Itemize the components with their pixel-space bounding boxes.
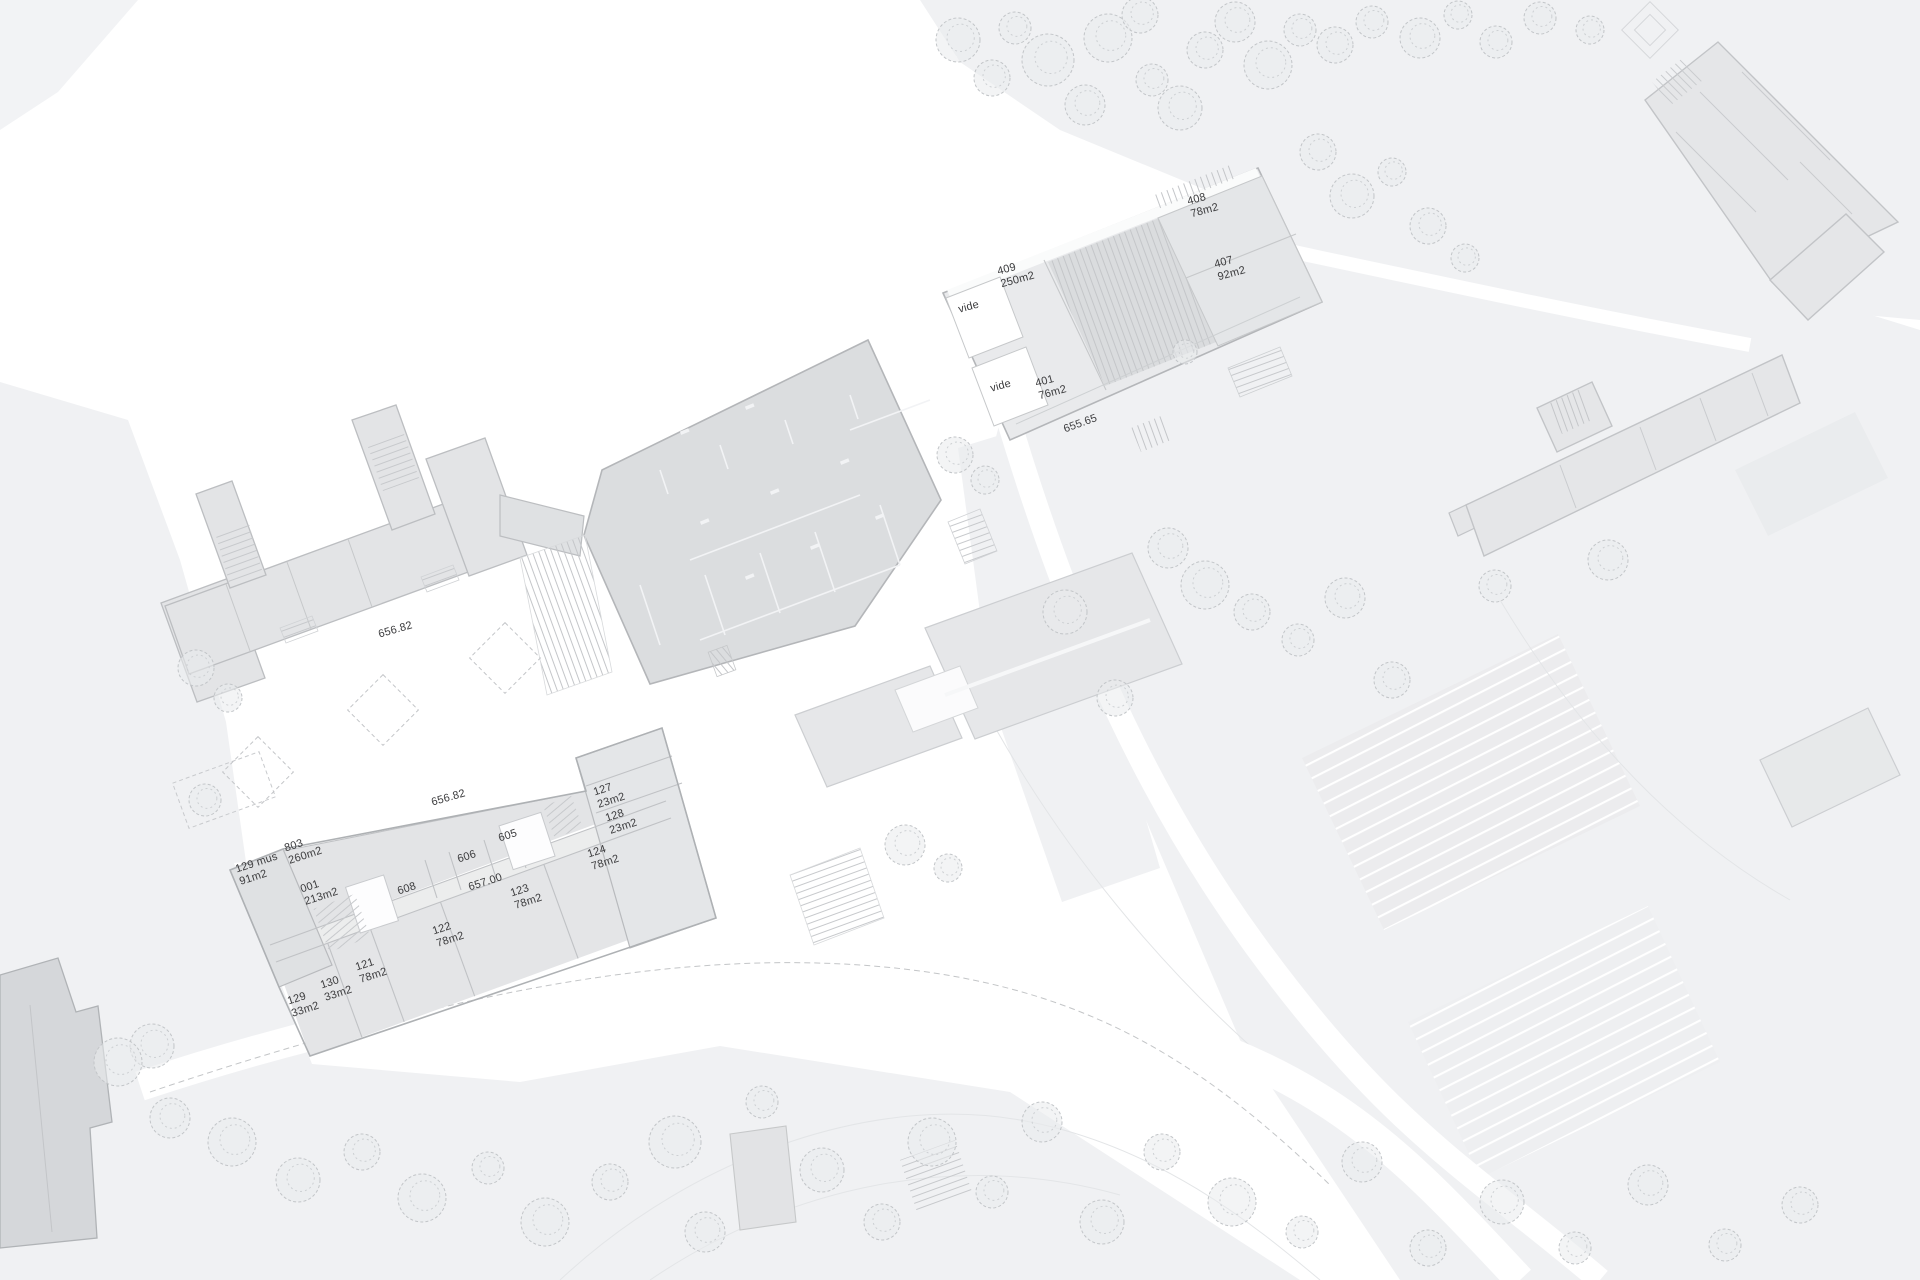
site-plan: 409250m2 40878m2 40792m2 40176m2 vide vi… xyxy=(0,0,1920,1280)
plaza-skylights xyxy=(223,623,541,808)
building-northwest xyxy=(161,405,527,702)
wide-stair xyxy=(790,848,884,945)
building-small-south xyxy=(730,1126,796,1230)
site-plan-canvas xyxy=(0,0,1920,1280)
